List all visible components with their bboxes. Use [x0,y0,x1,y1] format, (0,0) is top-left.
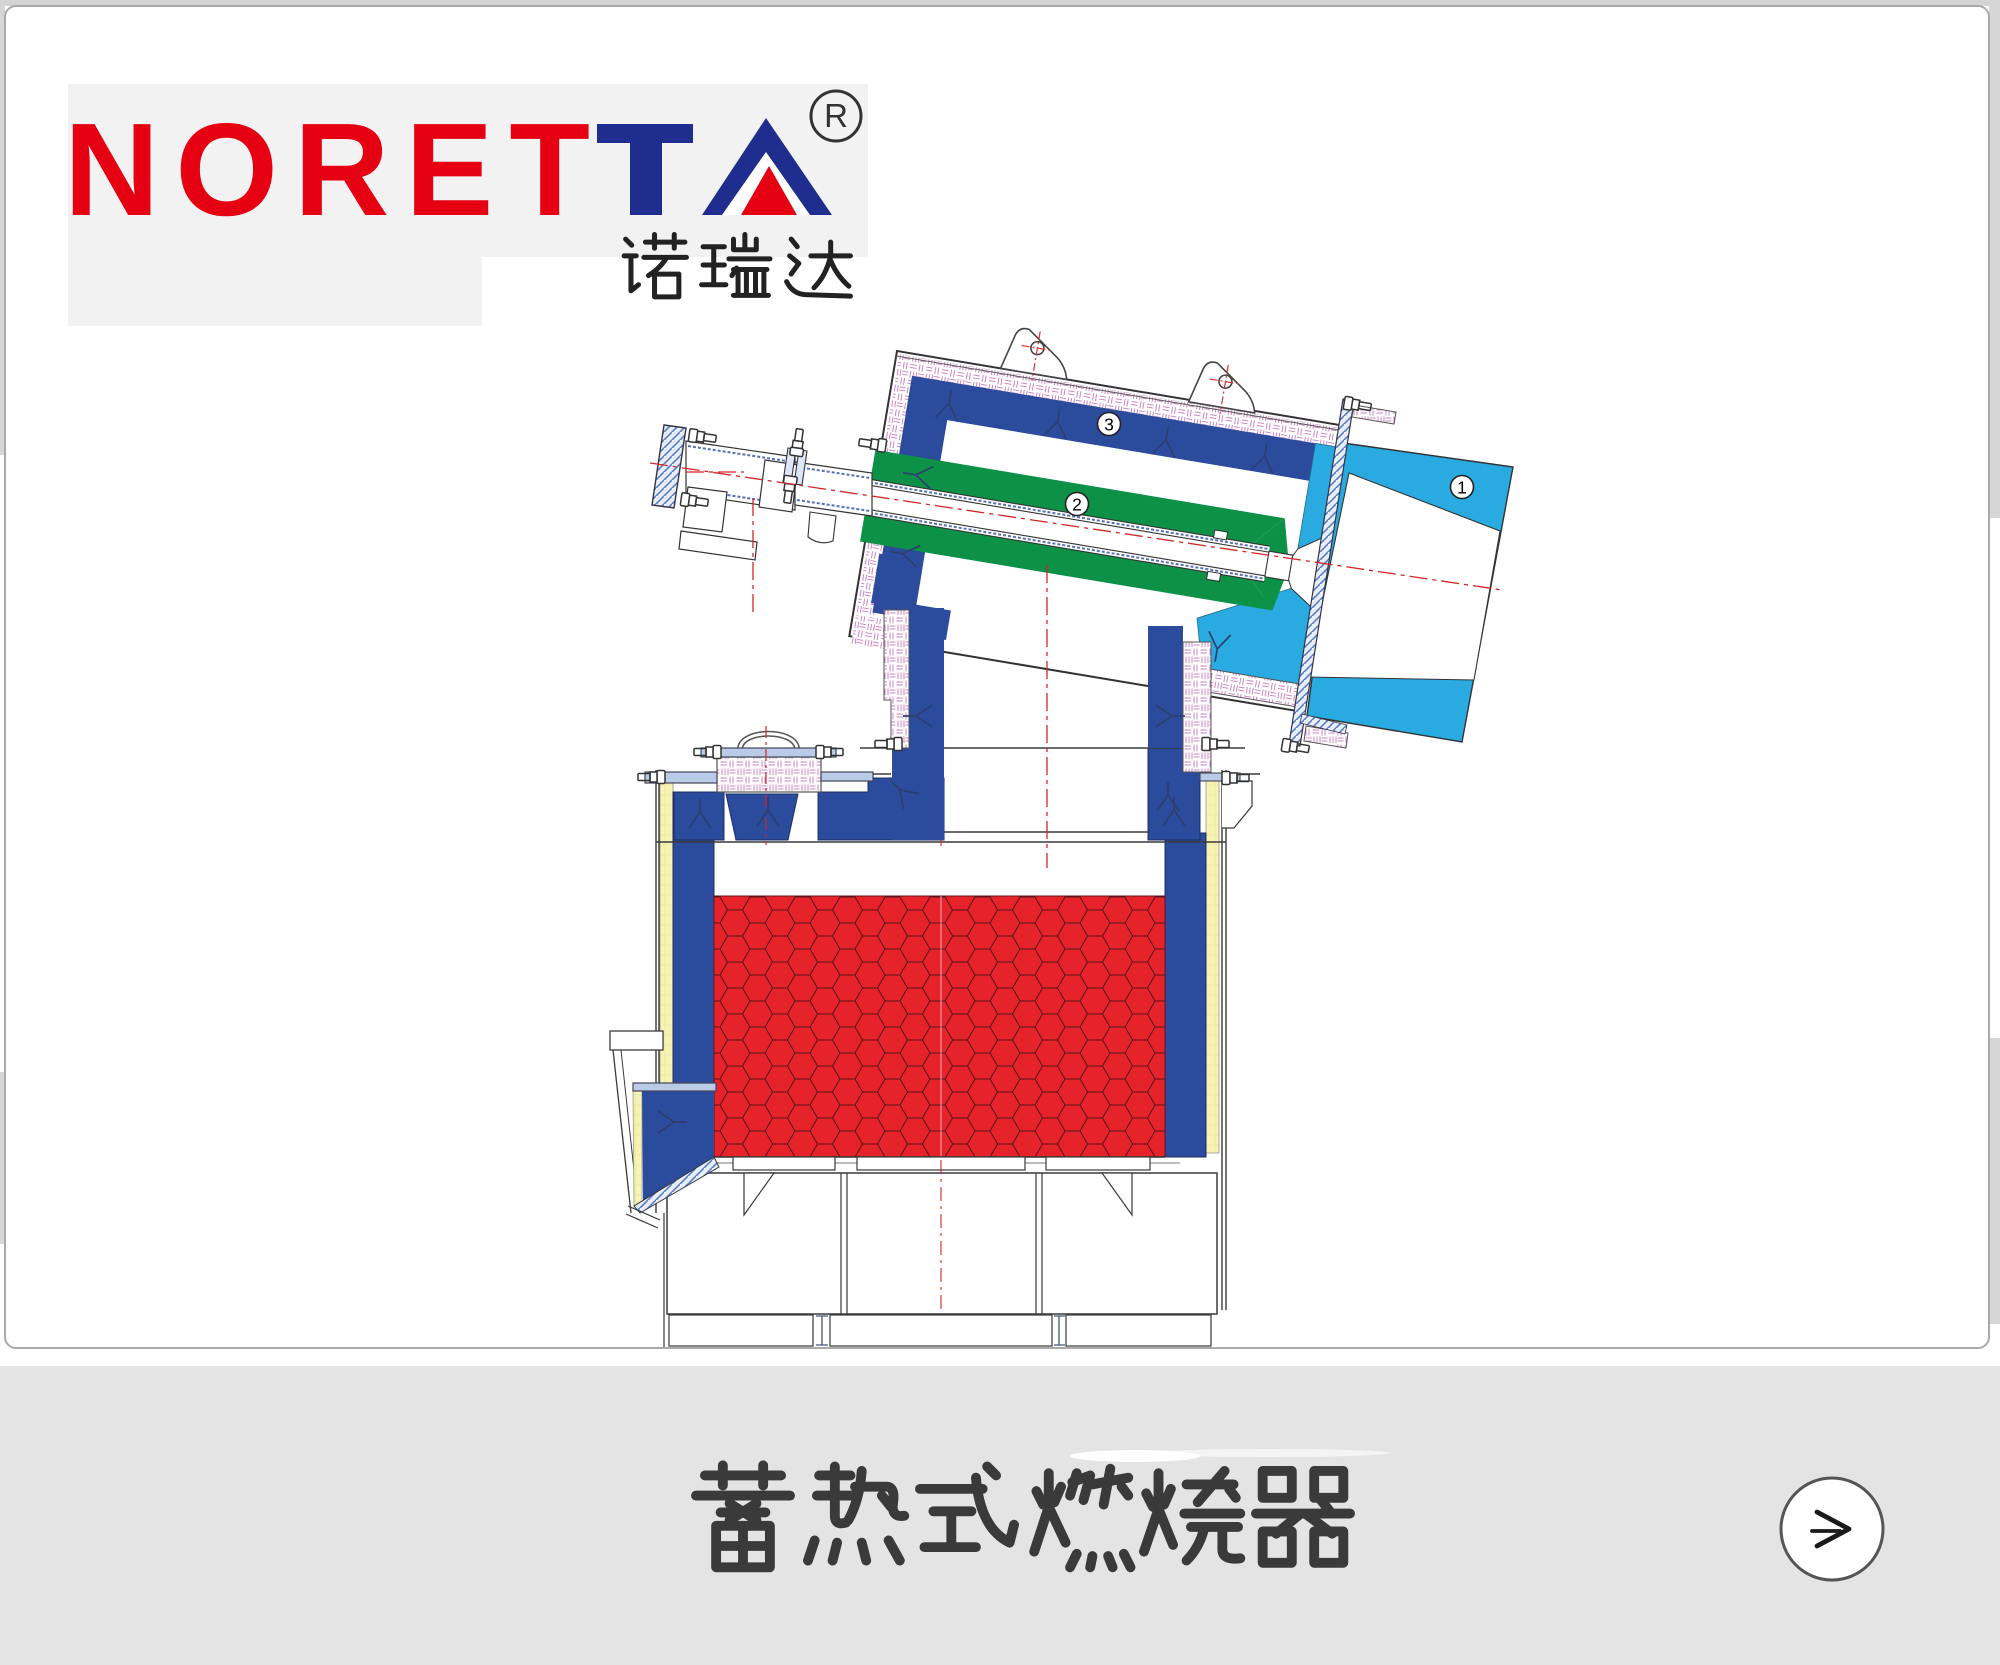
svg-text:2: 2 [1072,495,1082,515]
svg-text:3: 3 [1104,415,1114,435]
svg-text:R: R [824,97,848,134]
svg-text:1: 1 [1457,478,1467,498]
svg-text:NORET: NORET [64,96,606,243]
